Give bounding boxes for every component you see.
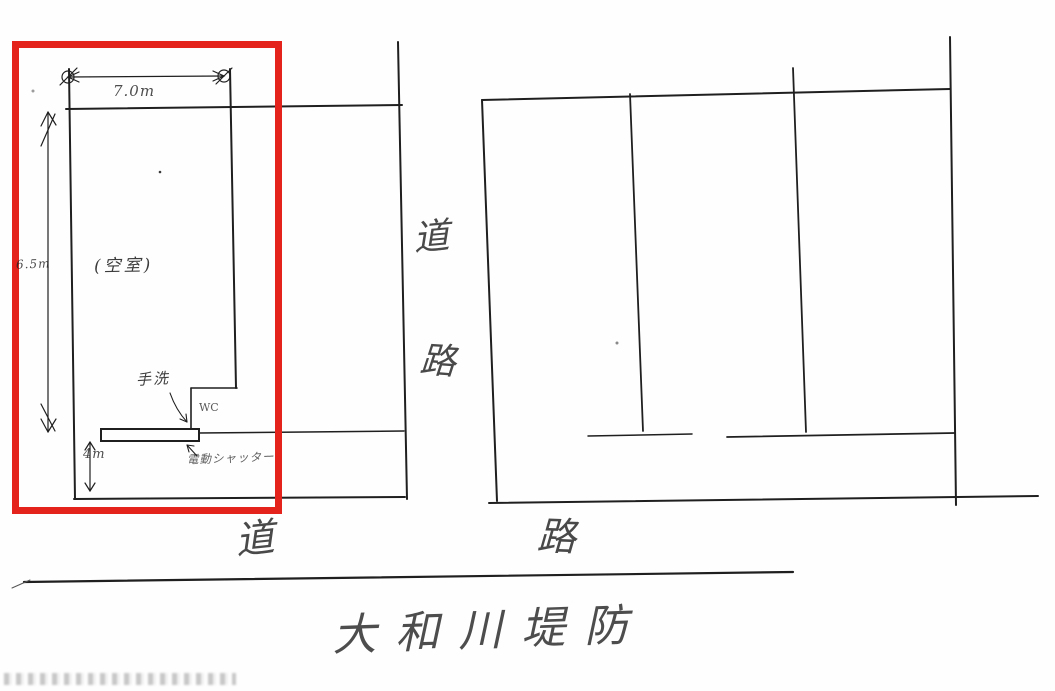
right-building-outline <box>482 37 1038 505</box>
site-plan-sketch: 7.0m 6.5m 4m (空室) 手洗 WC 電動シャッター 道 路 道 路 … <box>0 0 1055 691</box>
river-embankment-caption: 大和川堤防 <box>331 589 648 664</box>
cutoff-faint-text <box>4 673 236 685</box>
vacant-room-label: (空室) <box>94 250 154 276</box>
road-label-bottom-2: 路 <box>536 505 577 562</box>
wc-label: WC <box>199 401 219 414</box>
frontage-dimension-label: 4m <box>83 447 106 462</box>
hand-wash-label: 手洗 <box>135 367 170 390</box>
road-label-bottom-1: 道 <box>232 506 277 566</box>
height-dimension-label: 6.5m <box>16 256 51 271</box>
highlight-box <box>12 41 282 514</box>
road-label-vertical-1: 道 <box>411 207 451 262</box>
bottom-road-line <box>12 572 793 588</box>
width-dimension-label: 7.0m <box>113 82 155 100</box>
road-label-vertical-2: 路 <box>418 331 458 385</box>
electric-shutter-label: 電動シャッター <box>187 448 275 467</box>
partition-lines <box>588 68 955 437</box>
